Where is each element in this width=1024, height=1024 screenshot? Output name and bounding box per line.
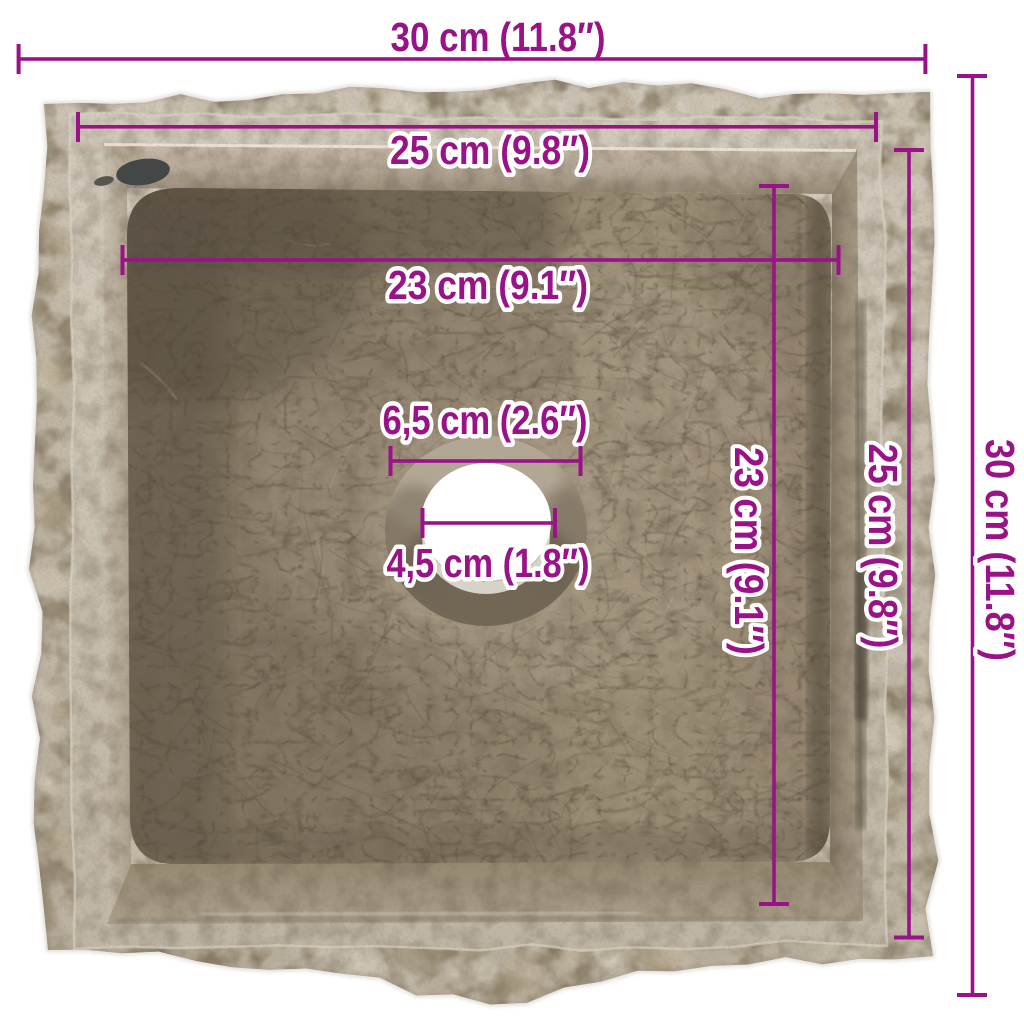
svg-text:23 cm (9.1″): 23 cm (9.1″) [388, 262, 588, 308]
svg-text:25 cm (9.8″): 25 cm (9.8″) [860, 444, 906, 649]
svg-text:6,5 cm (2.6″): 6,5 cm (2.6″) [383, 397, 588, 443]
svg-text:30 cm (11.8″): 30 cm (11.8″) [391, 14, 606, 60]
svg-text:25 cm (9.8″): 25 cm (9.8″) [390, 127, 590, 173]
svg-text:4,5 cm (1.8″): 4,5 cm (1.8″) [387, 540, 590, 586]
svg-text:30 cm (11.8″): 30 cm (11.8″) [977, 439, 1023, 661]
svg-text:23 cm (9.1″): 23 cm (9.1″) [726, 447, 772, 655]
